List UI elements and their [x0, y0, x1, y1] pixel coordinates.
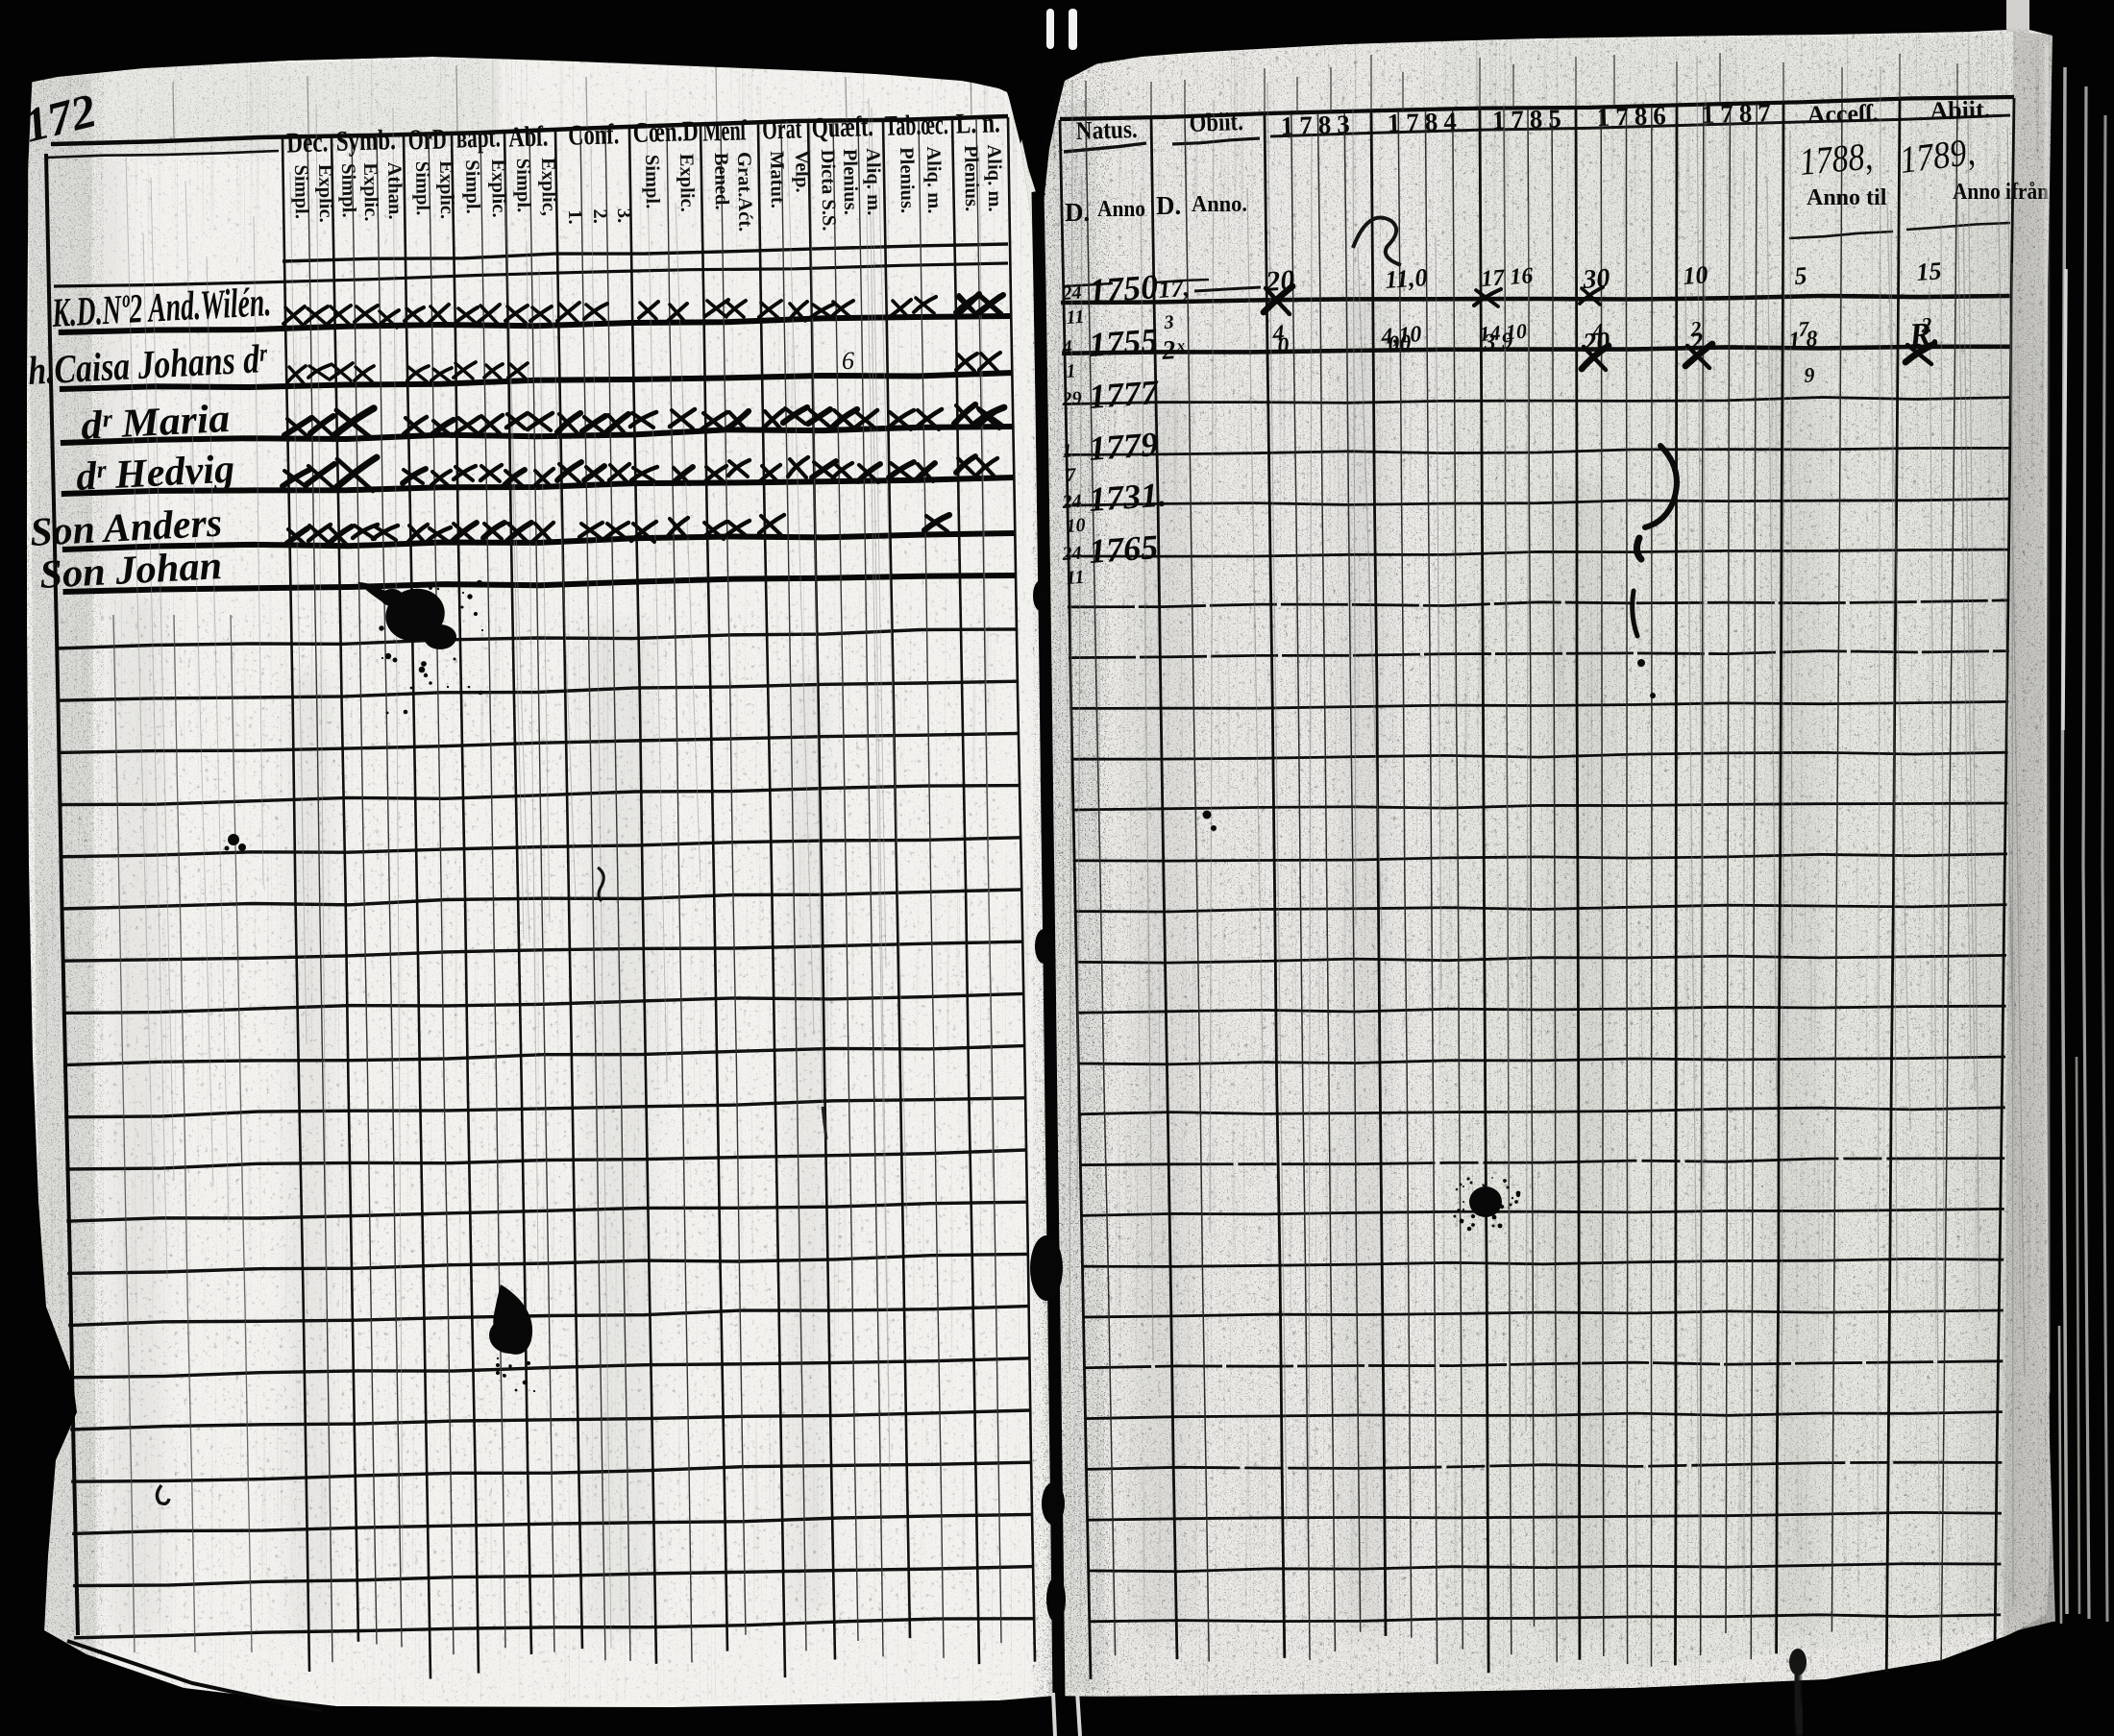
- svg-text:Bened.: Bened.: [710, 153, 732, 210]
- svg-text:1787: 1787: [1701, 98, 1777, 129]
- svg-text:Simpl.: Simpl.: [641, 155, 663, 209]
- svg-text:1788,: 1788,: [1798, 134, 1875, 183]
- svg-text:1779: 1779: [1088, 425, 1160, 468]
- svg-text:10: 10: [1066, 515, 1086, 537]
- svg-text:1: 1: [1062, 440, 1073, 462]
- svg-text:0: 0: [1277, 333, 1291, 359]
- svg-text:Natus.: Natus.: [1075, 114, 1138, 145]
- svg-text:OrD: OrD: [407, 123, 447, 156]
- svg-text:6: 6: [842, 347, 854, 375]
- svg-text:1765: 1765: [1088, 527, 1160, 571]
- svg-text:Anno: Anno: [1097, 197, 1145, 222]
- svg-text:1785: 1785: [1491, 104, 1567, 134]
- svg-text:вapt.: вapt.: [455, 121, 501, 154]
- svg-text:1731.: 1731.: [1088, 475, 1168, 519]
- svg-text:Veſp.: Veſp.: [791, 150, 813, 193]
- svg-text:Athan.: Athan.: [383, 161, 406, 219]
- svg-text:1783: 1783: [1280, 110, 1356, 140]
- svg-text:Plenius.: Plenius.: [960, 145, 982, 211]
- svg-text:L. n.: L. n.: [955, 107, 1000, 139]
- svg-text:29: 29: [1061, 388, 1082, 410]
- svg-text:3 9: 3 9: [1483, 329, 1514, 355]
- svg-text:Anno.: Anno.: [1192, 192, 1247, 217]
- svg-text:2.: 2.: [589, 208, 610, 224]
- svg-text:Obiit.: Obiit.: [1189, 107, 1243, 137]
- svg-text:Anno ifrån: Anno ifrån: [1953, 180, 2049, 205]
- svg-text:Abiit.: Abiit.: [1930, 95, 1991, 125]
- svg-text:1777: 1777: [1088, 373, 1162, 416]
- svg-text:10: 10: [1682, 260, 1708, 290]
- svg-text:Plenius.: Plenius.: [839, 149, 861, 215]
- svg-text:Aliq. m.: Aliq. m.: [983, 144, 1005, 211]
- svg-text:17 16: 17 16: [1481, 263, 1535, 292]
- svg-text:Explic,: Explic,: [537, 158, 559, 216]
- svg-text:3: 3: [1163, 311, 1175, 333]
- svg-text:17,: 17,: [1157, 274, 1190, 304]
- svg-text:Plenius.: Plenius.: [896, 147, 918, 213]
- svg-text:3.: 3.: [613, 208, 634, 224]
- svg-text:D.: D.: [1065, 198, 1090, 227]
- svg-text:Мenſ: Мenſ: [702, 114, 748, 147]
- svg-text:24: 24: [1061, 491, 1082, 513]
- svg-text:Simpl.: Simpl.: [337, 163, 359, 218]
- svg-text:Simpl.: Simpl.: [411, 161, 433, 216]
- svg-text:4: 4: [1061, 336, 1073, 358]
- svg-text:Conf.: Conf.: [568, 118, 620, 151]
- svg-text:Simpl.: Simpl.: [290, 164, 312, 219]
- svg-text:Grat.Aćt.: Grat.Aćt.: [733, 152, 755, 232]
- svg-text:Symb.: Symb.: [335, 124, 396, 158]
- svg-text:dʳ Hedvig: dʳ Hedvig: [75, 447, 235, 500]
- svg-text:1.: 1.: [564, 209, 585, 225]
- svg-text:Explic.: Explic.: [676, 154, 698, 212]
- svg-text:11,0: 11,0: [1384, 263, 1428, 294]
- svg-text:D.: D.: [1156, 191, 1181, 220]
- svg-text:Quæſt.: Quæſt.: [811, 110, 873, 144]
- svg-text:dʳ Maria: dʳ Maria: [80, 397, 231, 449]
- svg-text:1789,: 1789,: [1898, 130, 1978, 182]
- svg-text:1784: 1784: [1387, 107, 1463, 137]
- svg-text:Dec.: Dec.: [286, 126, 329, 159]
- svg-text:Explic.: Explic.: [487, 159, 509, 217]
- svg-text:Explic.: Explic.: [359, 162, 381, 221]
- svg-text:Cœn.D: Cœn.D: [632, 115, 699, 149]
- svg-text:2ˣ: 2ˣ: [1160, 334, 1186, 366]
- svg-text:1 8: 1 8: [1788, 327, 1819, 354]
- svg-text:Explic.: Explic.: [435, 160, 457, 219]
- svg-text:24: 24: [1061, 282, 1082, 305]
- svg-text:24: 24: [1061, 543, 1082, 565]
- svg-text:Aliq. m.: Aliq. m.: [862, 148, 884, 215]
- svg-text:1786: 1786: [1596, 101, 1672, 132]
- svg-text:Dicta S.S.: Dicta S.S.: [817, 149, 839, 231]
- svg-text:Matut.: Matut.: [766, 151, 788, 208]
- svg-text:9: 9: [1804, 362, 1816, 387]
- svg-text:1: 1: [1066, 360, 1077, 382]
- svg-text:11: 11: [1066, 567, 1085, 589]
- svg-text:Aliq. m.: Aliq. m.: [922, 146, 945, 213]
- svg-text:5: 5: [1793, 261, 1807, 290]
- svg-text:15: 15: [1915, 257, 1942, 286]
- svg-text:Acceſſ.: Acceſſ.: [1807, 99, 1879, 129]
- svg-text:Orat: Orat: [762, 112, 802, 145]
- svg-text:Anno til: Anno til: [1807, 185, 1887, 210]
- svg-text:1755: 1755: [1088, 321, 1160, 364]
- svg-text:00: 00: [1388, 330, 1413, 357]
- svg-text:Explic.: Explic.: [314, 164, 336, 223]
- svg-text:11: 11: [1066, 306, 1085, 329]
- svg-text:1750: 1750: [1088, 267, 1160, 310]
- svg-text:Simpl.: Simpl.: [512, 159, 534, 213]
- svg-text:Abſ.: Abſ.: [508, 120, 549, 153]
- svg-text:Tab.œc.: Tab.œc.: [884, 109, 948, 142]
- svg-text:Simpl.: Simpl.: [461, 159, 483, 214]
